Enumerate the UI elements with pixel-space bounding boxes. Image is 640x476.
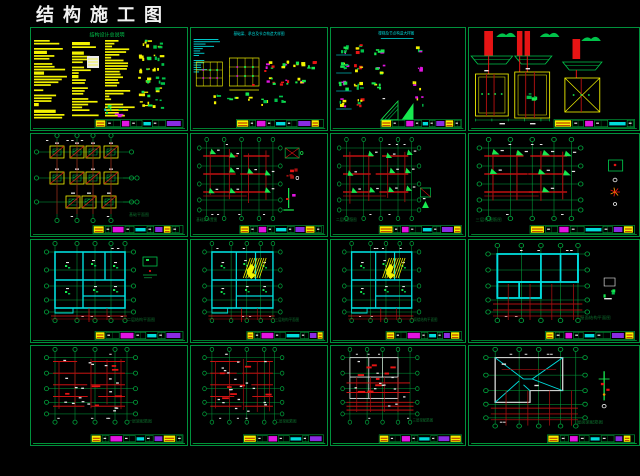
floor-plan-2f-panel: 二层结构平面图 xyxy=(30,239,188,343)
beam-plan-2f-drawing: 二层梁配筋图 xyxy=(191,346,327,445)
general-notes-sheet-panel: 结构设计总说明 xyxy=(30,27,188,131)
svg-text:阁楼结构平面图: 阁楼结构平面图 xyxy=(413,317,437,322)
beam-plan-2f-panel: 二层梁配筋图 xyxy=(190,345,328,446)
svg-text:基础平面图: 基础平面图 xyxy=(129,211,149,217)
svg-text:基础梁、承台及节点构造大样图: 基础梁、承台及节点构造大样图 xyxy=(233,31,284,36)
ground-beam-plan-panel: 基础梁布置图 xyxy=(190,133,328,237)
floor-plan-2f-drawing: 二层结构平面图 xyxy=(31,240,187,342)
column-plan-2f-panel: 二层柱配筋图 xyxy=(330,133,466,237)
svg-text:二层结构平面图: 二层结构平面图 xyxy=(127,316,155,322)
column-plan-3f-drawing: 三层柱配筋图 xyxy=(469,134,639,236)
sheet-grid: 结构设计总说明基础梁、承台及节点构造大样图楼梯及节点构造大样图基础平面图基础梁布… xyxy=(30,27,640,446)
pier-foundation-details-drawing xyxy=(469,28,639,130)
beam-plan-3f-drawing: 三层梁配筋图 xyxy=(331,346,465,445)
roof-framing-plan-drawing: 屋面梁配筋图 xyxy=(469,346,639,445)
svg-text:二层梁配筋图: 二层梁配筋图 xyxy=(276,418,297,423)
svg-text:三层柱配筋图: 三层柱配筋图 xyxy=(476,216,502,222)
node-detail-sheet-drawing: 楼梯及节点构造大样图 xyxy=(331,28,465,130)
roof-framing-plan-panel: 屋面梁配筋图 xyxy=(468,345,640,446)
general-notes-sheet-drawing: 结构设计总说明 xyxy=(31,28,187,130)
svg-text:结构设计总说明: 结构设计总说明 xyxy=(89,32,124,39)
column-plan-2f-drawing: 二层柱配筋图 xyxy=(331,134,465,236)
roof-structure-plan-drawing: 屋面结构平面图 xyxy=(469,240,639,342)
svg-text:屋面梁配筋图: 屋面梁配筋图 xyxy=(577,419,603,425)
svg-text:基础梁布置图: 基础梁布置图 xyxy=(196,217,217,222)
foundation-plan-panel: 基础平面图 xyxy=(30,133,188,237)
svg-text:三层结构平面图: 三层结构平面图 xyxy=(275,317,300,322)
foundation-detail-sheet-panel: 基础梁、承台及节点构造大样图 xyxy=(190,27,328,131)
foundation-plan-drawing: 基础平面图 xyxy=(31,134,187,236)
floor-plan-loft-drawing: 阁楼结构平面图 xyxy=(331,240,465,342)
svg-text:三层梁配筋图: 三层梁配筋图 xyxy=(413,417,434,422)
pier-foundation-details-panel xyxy=(468,27,640,131)
roof-structure-plan-panel: 屋面结构平面图 xyxy=(468,239,640,343)
beam-plan-1f-panel: 一层梁配筋图 xyxy=(30,345,188,446)
ground-beam-plan-drawing: 基础梁布置图 xyxy=(191,134,327,236)
node-detail-sheet-panel: 楼梯及节点构造大样图 xyxy=(330,27,466,131)
floor-plan-3f-panel: 三层结构平面图 xyxy=(190,239,328,343)
page-title: 结构施工图 xyxy=(36,1,171,27)
column-plan-3f-panel: 三层柱配筋图 xyxy=(468,133,640,237)
beam-plan-3f-panel: 三层梁配筋图 xyxy=(330,345,466,446)
svg-text:屋面结构平面图: 屋面结构平面图 xyxy=(580,314,610,320)
svg-text:一层梁配筋图: 一层梁配筋图 xyxy=(128,419,152,424)
svg-text:楼梯及节点构造大样图: 楼梯及节点构造大样图 xyxy=(378,30,414,35)
floor-plan-3f-drawing: 三层结构平面图 xyxy=(191,240,327,342)
beam-plan-1f-drawing: 一层梁配筋图 xyxy=(31,346,187,445)
floor-plan-loft-panel: 阁楼结构平面图 xyxy=(330,239,466,343)
svg-text:二层柱配筋图: 二层柱配筋图 xyxy=(336,217,357,222)
foundation-detail-sheet-drawing: 基础梁、承台及节点构造大样图 xyxy=(191,28,327,130)
drawing-canvas: 结构施工图 结构设计总说明基础梁、承台及节点构造大样图楼梯及节点构造大样图基础平… xyxy=(0,0,640,476)
